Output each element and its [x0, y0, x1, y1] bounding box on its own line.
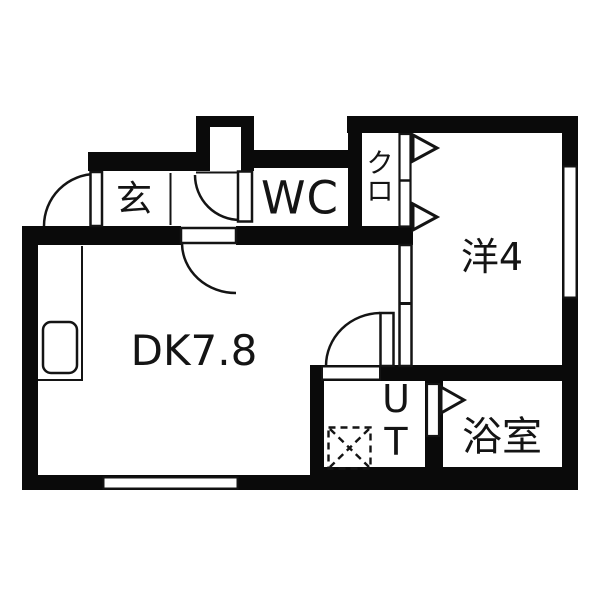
- kitchen-sink: [43, 322, 77, 373]
- room-label-bathroom: 浴室: [462, 417, 542, 457]
- wc-door-leaf: [238, 172, 252, 222]
- south-window: [104, 478, 238, 489]
- entrance-door-leaf: [91, 172, 103, 226]
- dk-door-leaf: [181, 228, 236, 243]
- closet-door-triangle-bottom: [413, 204, 437, 230]
- room-label-western-room: 洋4: [461, 238, 523, 276]
- wall-mid-east: [236, 226, 413, 245]
- east-window: [564, 167, 577, 298]
- floorplan: 玄 WC クロ 洋4 DK7.8 UT 浴室: [0, 0, 600, 600]
- washer-space-cross: [330, 429, 369, 467]
- wall-top-entrance: [88, 152, 196, 171]
- closet-door-triangle-top: [413, 135, 437, 161]
- room-label-wc: WC: [261, 176, 339, 221]
- room-label-closet: クロ: [364, 151, 395, 208]
- bathroom-door-triangle: [441, 387, 464, 413]
- dk-door-arc: [182, 244, 236, 294]
- floorplan-drawing: [0, 0, 600, 600]
- ut-door-leaf: [381, 313, 394, 366]
- wall-mid-west: [22, 226, 181, 245]
- room-label-dk: DK7.8: [131, 330, 258, 372]
- wall-ut-left: [310, 365, 324, 490]
- room-label-ut: UT: [374, 378, 418, 464]
- ut-door-opening: [322, 367, 380, 380]
- wall-top-east: [347, 116, 578, 133]
- entrance-door-arc: [44, 174, 96, 226]
- sliding-door-panel: [400, 245, 412, 366]
- pipe-space-notch: [210, 127, 241, 171]
- bathroom-door-panel: [427, 384, 439, 436]
- ut-door-arc: [326, 313, 380, 366]
- wall-top-wc: [241, 150, 360, 168]
- wc-door-arc: [195, 175, 240, 220]
- room-label-genkan: 玄: [116, 182, 152, 218]
- wall-left: [22, 226, 38, 490]
- wall-bottom-east: [310, 467, 578, 490]
